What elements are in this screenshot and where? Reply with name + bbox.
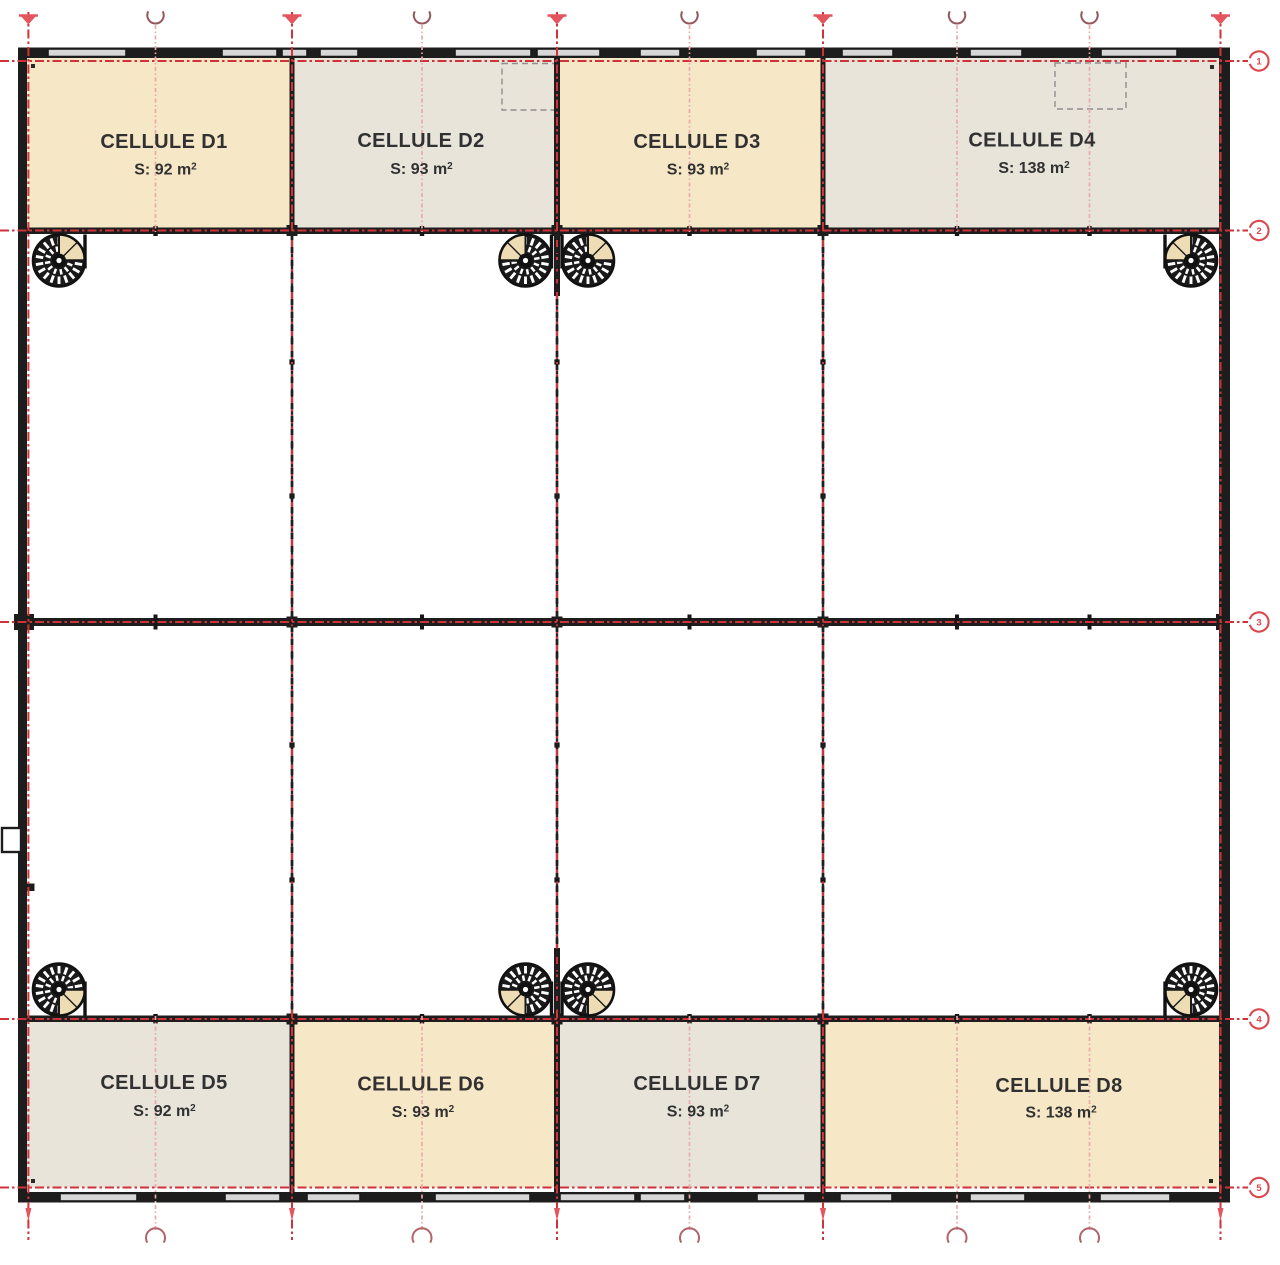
svg-text:S: 138 m2: S: 138 m2 [998,160,1070,177]
svg-text:CELLULE D1: CELLULE D1 [100,131,227,153]
svg-text:S: 93 m2: S: 93 m2 [392,1104,455,1121]
svg-text:S: 92 m2: S: 92 m2 [134,162,197,179]
svg-text:S: 138 m2: S: 138 m2 [1025,1105,1097,1122]
svg-text:CELLULE D8: CELLULE D8 [995,1075,1122,1097]
svg-text:4: 4 [1256,1015,1262,1026]
svg-text:S: 92 m2: S: 92 m2 [133,1103,196,1120]
svg-text:CELLULE D2: CELLULE D2 [357,130,484,152]
svg-text:S: 93 m2: S: 93 m2 [667,1104,730,1121]
svg-text:CELLULE D3: CELLULE D3 [633,131,760,153]
svg-text:CELLULE D4: CELLULE D4 [968,130,1096,152]
svg-text:2: 2 [1256,226,1261,237]
svg-text:1: 1 [1256,57,1262,68]
svg-text:S: 93 m2: S: 93 m2 [390,161,453,178]
svg-text:S: 93 m2: S: 93 m2 [667,162,730,179]
svg-text:CELLULE D6: CELLULE D6 [357,1074,484,1096]
svg-text:CELLULE D7: CELLULE D7 [633,1073,760,1095]
svg-text:5: 5 [1256,1183,1262,1194]
svg-text:3: 3 [1256,618,1261,629]
svg-text:CELLULE D5: CELLULE D5 [100,1072,227,1094]
